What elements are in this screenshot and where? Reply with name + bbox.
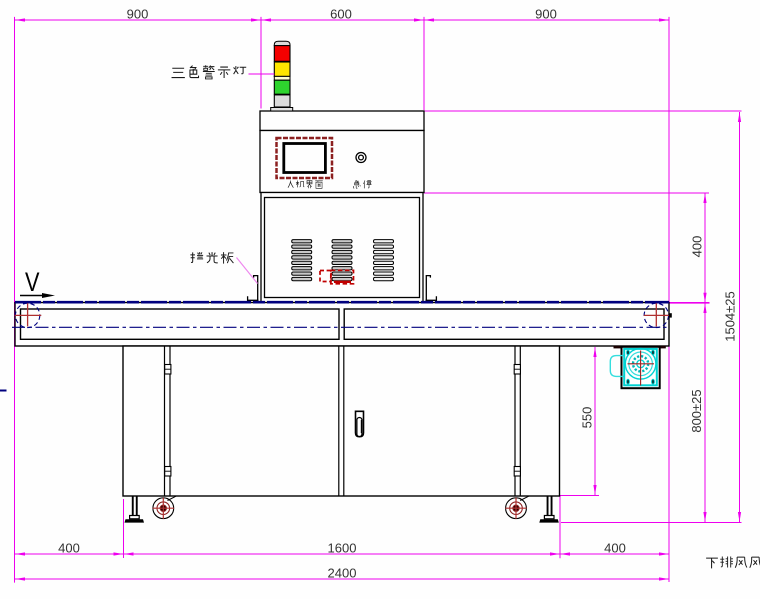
svg-text:400: 400 (690, 236, 705, 258)
svg-text:900: 900 (127, 6, 149, 21)
svg-text:400: 400 (58, 540, 80, 555)
svg-text:600: 600 (330, 6, 352, 21)
svg-text:550: 550 (580, 407, 595, 429)
svg-text:2400: 2400 (328, 565, 357, 580)
svg-text:900: 900 (535, 6, 557, 21)
svg-text:400: 400 (604, 540, 626, 555)
svg-text:1504±25: 1504±25 (723, 291, 738, 342)
svg-text:V: V (25, 267, 40, 297)
svg-text:800±25: 800±25 (689, 389, 704, 432)
svg-text:1600: 1600 (328, 540, 357, 555)
